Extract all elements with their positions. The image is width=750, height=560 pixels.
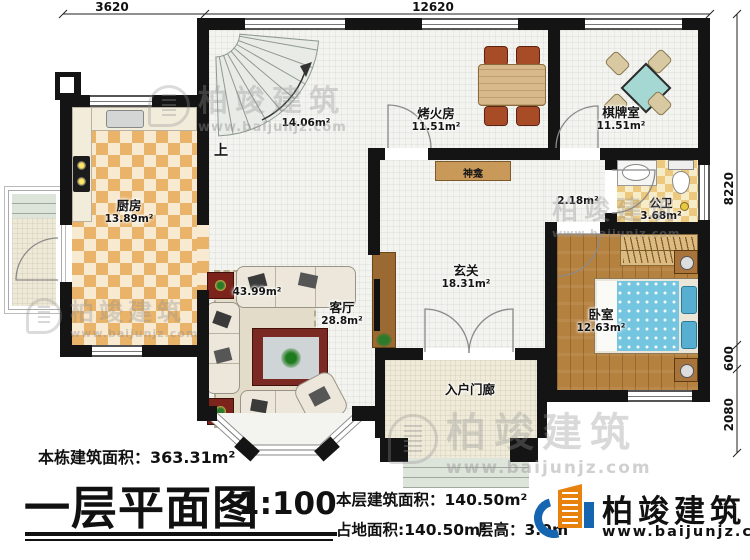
window bbox=[698, 165, 710, 220]
bathroom-sink bbox=[622, 164, 650, 181]
entry-porch-label: 入户门廊 bbox=[445, 383, 495, 397]
dim-3620: 3620 bbox=[95, 0, 128, 14]
wall-segment bbox=[375, 360, 385, 438]
wall-segment bbox=[600, 222, 698, 234]
tv-cabinet bbox=[372, 252, 396, 348]
logo-building bbox=[558, 484, 582, 528]
throw-pillow bbox=[298, 272, 318, 288]
wall-segment bbox=[537, 360, 547, 438]
kitchen-stove bbox=[73, 156, 90, 192]
window bbox=[628, 390, 692, 402]
wall-segment bbox=[197, 18, 209, 225]
dining-chair bbox=[516, 106, 540, 126]
floor-foyer bbox=[375, 160, 545, 348]
brand-url: www.baijunjz.com bbox=[602, 524, 750, 540]
kitchen-label: 厨房13.89m² bbox=[105, 199, 154, 225]
fire-room-label: 烤火房11.51m² bbox=[412, 107, 461, 133]
wall-segment bbox=[515, 348, 557, 360]
nightstand bbox=[674, 250, 698, 274]
bed-pillow bbox=[681, 321, 697, 349]
cabinet-plant bbox=[376, 333, 392, 347]
table-plant bbox=[281, 348, 301, 368]
plan-scale: 1:100 bbox=[238, 486, 337, 522]
throw-pillow bbox=[250, 399, 268, 414]
living-combined-area-label: 43.99m² bbox=[233, 286, 282, 298]
entry-steps bbox=[403, 458, 529, 488]
dining-chair bbox=[516, 46, 540, 66]
floor-area-text: 本层建筑面积：140.50m² bbox=[336, 488, 527, 510]
side-table bbox=[207, 272, 234, 299]
sofa-chaise bbox=[206, 302, 240, 394]
wall-segment bbox=[605, 160, 617, 170]
wall-segment bbox=[557, 390, 628, 402]
window bbox=[422, 18, 518, 30]
wall-segment bbox=[692, 390, 710, 402]
tv-screen bbox=[374, 279, 380, 331]
dining-table bbox=[478, 64, 546, 106]
dim-8220: 8220 bbox=[722, 172, 736, 205]
bedroom-label: 卧室12.63m² bbox=[577, 308, 626, 334]
shrine-label: 神龛 bbox=[463, 169, 483, 180]
porch-post bbox=[380, 438, 408, 462]
stairs-up-label: 上 bbox=[214, 143, 228, 159]
bed-pillow bbox=[681, 286, 697, 314]
dining-chair bbox=[484, 106, 508, 126]
dim-12620: 12620 bbox=[412, 0, 454, 14]
window bbox=[92, 345, 142, 357]
bed-duvet bbox=[617, 281, 679, 351]
shrine-shelf: 神龛 bbox=[435, 161, 511, 181]
wall-segment bbox=[375, 348, 423, 360]
wall-segment bbox=[428, 148, 548, 160]
chess-room-label: 棋牌室11.51m² bbox=[597, 106, 646, 132]
nightstand bbox=[674, 358, 698, 382]
total-area-text: 本栋建筑面积：363.31m² bbox=[38, 444, 235, 468]
wall-segment bbox=[548, 18, 560, 160]
window bbox=[585, 18, 682, 30]
window bbox=[245, 18, 345, 30]
wall-segment bbox=[197, 357, 209, 407]
brand-logo-icon bbox=[534, 484, 594, 546]
ground-area-text: 占地面积:140.50m² bbox=[336, 518, 487, 540]
floor-corridor bbox=[545, 160, 605, 222]
corridor-label: 2.18m² bbox=[557, 195, 598, 207]
bathroom-label: 公卫3.68m² bbox=[640, 197, 681, 222]
plan-title: 一层平面图 bbox=[24, 472, 259, 538]
wall-segment bbox=[368, 160, 380, 255]
wall-segment bbox=[60, 345, 92, 357]
side-table bbox=[207, 398, 234, 425]
wall-segment bbox=[368, 148, 385, 160]
throw-pillow bbox=[214, 347, 233, 363]
floor-plan: 神龛 bbox=[0, 0, 750, 560]
stairwell-label: 14.06m² bbox=[282, 117, 331, 129]
title-rule-thin bbox=[25, 539, 333, 541]
title-rule-thick bbox=[25, 532, 337, 536]
porch-post bbox=[510, 438, 538, 462]
foyer-label: 玄关18.31m² bbox=[442, 264, 491, 290]
wall-segment bbox=[197, 290, 209, 357]
wall-segment bbox=[548, 148, 560, 160]
wall-segment bbox=[600, 148, 698, 160]
dim-600: 600 bbox=[722, 346, 736, 371]
kitchen-corner-inset bbox=[60, 77, 74, 93]
wall-segment bbox=[605, 213, 617, 222]
kitchen-sink bbox=[106, 110, 144, 128]
living-room-label: 客厅28.8m² bbox=[321, 301, 362, 327]
window bbox=[90, 95, 152, 107]
dining-chair bbox=[484, 46, 508, 66]
wall-segment bbox=[60, 95, 72, 225]
wall-segment bbox=[545, 222, 557, 234]
side-porch-steps bbox=[12, 194, 56, 218]
throw-pillow bbox=[308, 386, 330, 407]
wall-segment bbox=[345, 18, 422, 30]
dim-2080: 2080 bbox=[722, 398, 736, 431]
logo-building-small bbox=[584, 502, 594, 528]
side-porch-floor bbox=[12, 218, 56, 306]
toilet-tank bbox=[668, 160, 694, 170]
throw-pillow bbox=[212, 311, 231, 329]
